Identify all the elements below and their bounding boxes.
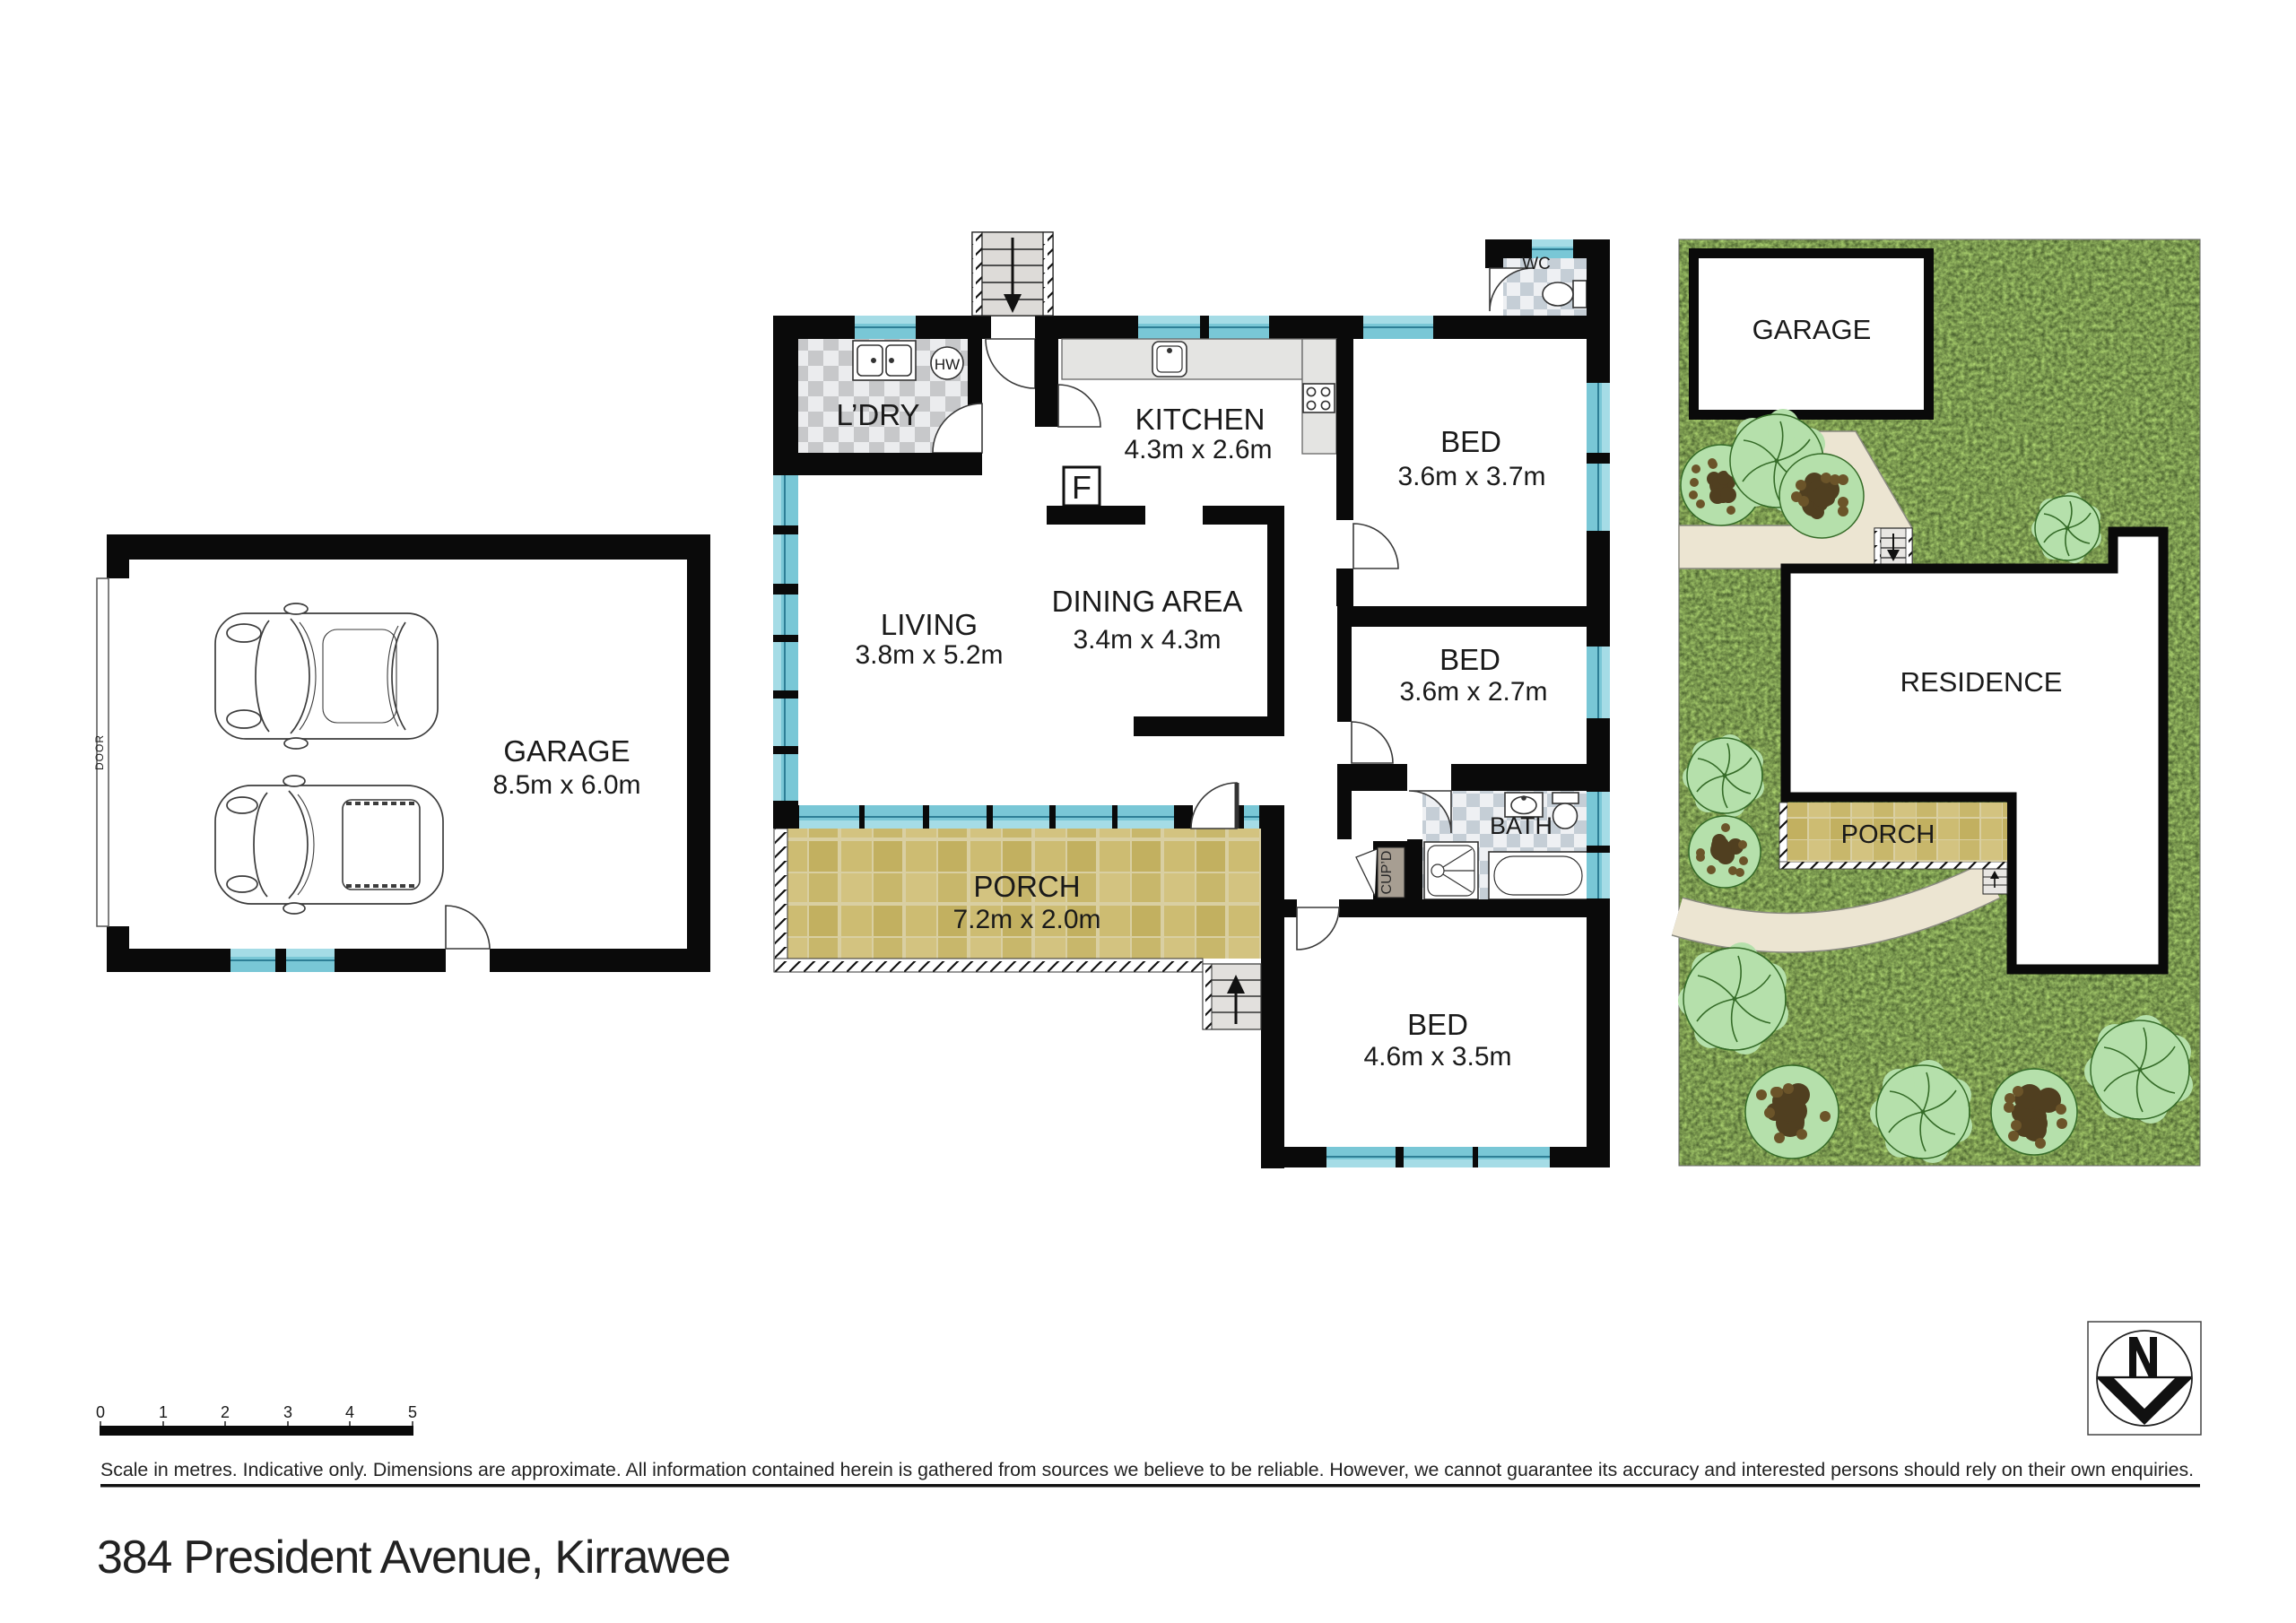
svg-text:KITCHEN: KITCHEN [1135, 403, 1265, 436]
svg-text:3: 3 [283, 1403, 292, 1421]
svg-text:4.3m x 2.6m: 4.3m x 2.6m [1124, 435, 1272, 464]
svg-text:GARAGE: GARAGE [503, 734, 630, 768]
svg-text:CUP’D: CUP’D [1379, 851, 1395, 895]
svg-text:BED: BED [1439, 643, 1500, 676]
svg-text:1: 1 [159, 1403, 168, 1421]
svg-text:384 President Avenue, Kirrawee: 384 President Avenue, Kirrawee [97, 1532, 730, 1584]
svg-text:0: 0 [96, 1403, 105, 1421]
svg-text:4: 4 [345, 1403, 354, 1421]
svg-text:DOOR: DOOR [93, 734, 106, 770]
svg-text:BED: BED [1407, 1008, 1468, 1041]
svg-text:2: 2 [221, 1403, 230, 1421]
svg-text:LIVING: LIVING [881, 608, 978, 641]
svg-text:BED: BED [1440, 425, 1501, 458]
svg-text:RESIDENCE: RESIDENCE [1900, 666, 2063, 698]
svg-text:5: 5 [408, 1403, 417, 1421]
svg-text:L’DRY: L’DRY [837, 398, 920, 431]
svg-text:PORCH: PORCH [973, 870, 1080, 903]
svg-text:PORCH: PORCH [1841, 820, 1935, 849]
svg-text:7.2m x 2.0m: 7.2m x 2.0m [952, 905, 1100, 934]
svg-text:F: F [1072, 469, 1091, 506]
svg-text:3.6m x 2.7m: 3.6m x 2.7m [1399, 677, 1547, 707]
svg-text:8.5m x 6.0m: 8.5m x 6.0m [492, 770, 640, 800]
svg-text:3.4m x 4.3m: 3.4m x 4.3m [1073, 625, 1221, 655]
svg-text:4.6m x 3.5m: 4.6m x 3.5m [1363, 1042, 1511, 1072]
svg-text:Scale in metres. Indicative on: Scale in metres. Indicative only. Dimens… [100, 1459, 2194, 1480]
svg-text:3.6m x 3.7m: 3.6m x 3.7m [1397, 462, 1545, 491]
svg-text:WC: WC [1522, 255, 1551, 273]
svg-text:HW: HW [935, 356, 960, 373]
svg-text:DINING AREA: DINING AREA [1052, 585, 1243, 618]
svg-text:3.8m x 5.2m: 3.8m x 5.2m [855, 640, 1003, 670]
svg-text:GARAGE: GARAGE [1752, 314, 1872, 345]
svg-text:BATH: BATH [1490, 812, 1552, 839]
